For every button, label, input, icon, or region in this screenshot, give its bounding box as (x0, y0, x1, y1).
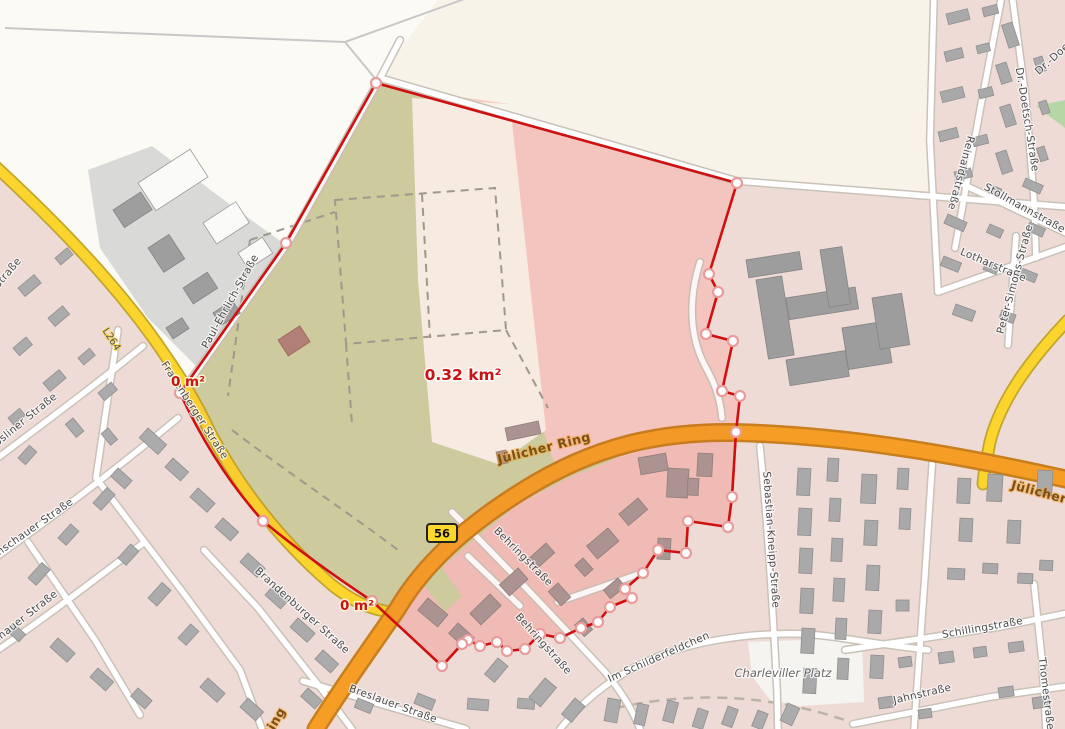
building (866, 565, 880, 591)
polygon-vertex[interactable] (701, 329, 711, 339)
building (835, 618, 847, 640)
map-canvas[interactable]: Frauenberger Straße L264 Paul-Ehrlich-St… (0, 0, 1065, 729)
building (467, 698, 489, 711)
building (959, 518, 973, 542)
building (1007, 520, 1021, 544)
polygon-vertex[interactable] (653, 545, 663, 555)
building (801, 628, 815, 654)
polygon-vertex[interactable] (576, 623, 586, 633)
polygon-vertex[interactable] (731, 427, 741, 437)
building (947, 568, 965, 580)
measurement-total-area-label: 0.32 km² (425, 366, 502, 384)
polygon-vertex[interactable] (728, 336, 738, 346)
polygon-vertex[interactable] (735, 391, 745, 401)
polygon-vertex[interactable] (713, 287, 723, 297)
polygon-vertex[interactable] (732, 178, 742, 188)
polygon-vertex[interactable] (704, 269, 714, 279)
building (1017, 573, 1033, 584)
building (973, 646, 987, 658)
building (799, 548, 813, 574)
polygon-vertex[interactable] (258, 516, 268, 526)
building (897, 468, 909, 490)
place-label-charleviller-platz: Charleviller Platz (735, 666, 833, 680)
polygon-vertex[interactable] (492, 637, 502, 647)
building (868, 610, 882, 634)
building (1039, 560, 1053, 571)
polygon-vertex[interactable] (593, 617, 603, 627)
polygon-vertex[interactable] (620, 584, 630, 594)
building (1008, 641, 1024, 653)
building (898, 656, 912, 668)
building (938, 651, 954, 664)
route-shield-ref: 56 (434, 527, 450, 541)
building (831, 538, 843, 562)
polygon-vertex[interactable] (681, 548, 691, 558)
polygon-vertex[interactable] (723, 522, 733, 532)
building (833, 578, 845, 602)
polygon-vertex[interactable] (437, 661, 447, 671)
polygon-vertex[interactable] (727, 492, 737, 502)
building (829, 498, 841, 522)
polygon-vertex[interactable] (457, 639, 467, 649)
building (800, 588, 814, 614)
polygon-vertex[interactable] (371, 78, 381, 88)
map-viewport[interactable]: Frauenberger Straße L264 Paul-Ehrlich-St… (0, 0, 1065, 729)
building (899, 508, 911, 530)
route-shield-56: 56 (427, 524, 457, 542)
polygon-vertex[interactable] (520, 644, 530, 654)
polygon-vertex[interactable] (502, 646, 512, 656)
building (864, 520, 878, 546)
polygon-vertex[interactable] (717, 386, 727, 396)
building (827, 458, 839, 482)
building (982, 563, 998, 574)
building (957, 478, 971, 504)
building (798, 508, 812, 536)
polygon-vertex[interactable] (638, 568, 648, 578)
polygon-vertex[interactable] (683, 516, 693, 526)
polygon-vertex[interactable] (605, 602, 615, 612)
building (918, 708, 932, 719)
measurement-zero-label-2: 0 m² (340, 598, 374, 614)
building (860, 474, 876, 504)
building (797, 468, 811, 496)
polygon-vertex[interactable] (475, 641, 485, 651)
building (998, 686, 1014, 698)
measurement-zero-label-1: 0 m² (171, 374, 205, 390)
polygon-vertex[interactable] (555, 633, 565, 643)
building (870, 655, 884, 679)
building (837, 658, 849, 680)
polygon-vertex[interactable] (627, 593, 637, 603)
building (896, 600, 909, 611)
polygon-vertex[interactable] (281, 238, 291, 248)
building (987, 474, 1003, 502)
